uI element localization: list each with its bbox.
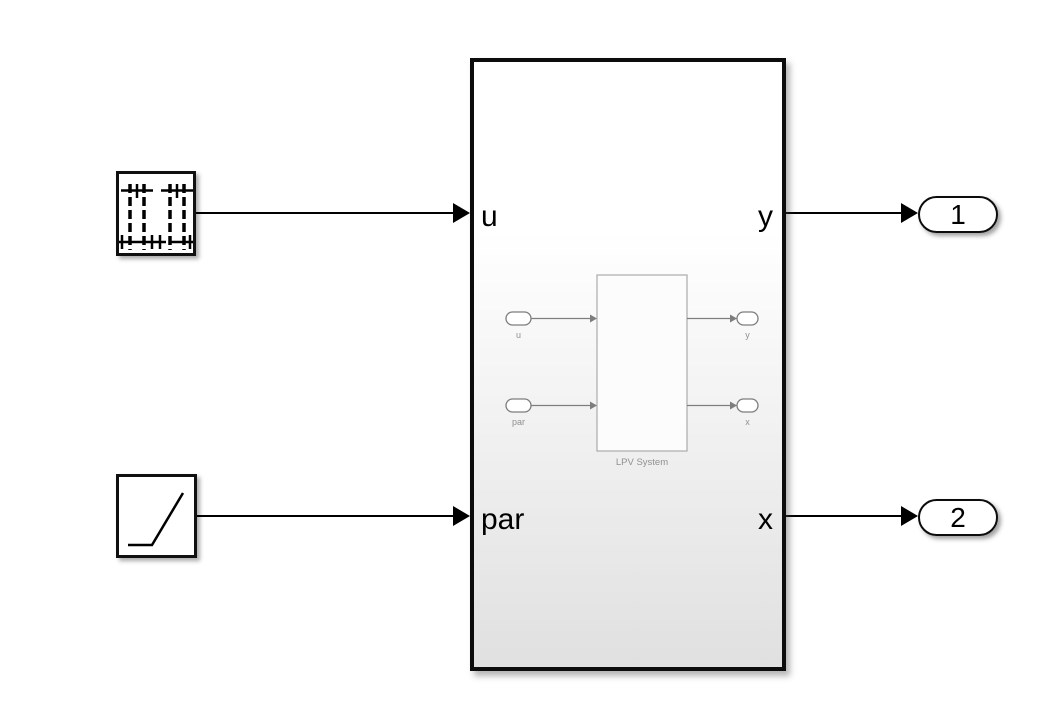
preview-lpv-system-block (597, 275, 687, 451)
subsystem-preview: u par y x LPV System (499, 269, 769, 474)
ramp-icon (119, 477, 194, 555)
subsystem-port-label-y: y (758, 202, 773, 232)
wire-y[interactable] (786, 212, 901, 214)
wire-u-arrowhead-icon (453, 203, 470, 223)
wire-u[interactable] (196, 212, 454, 214)
preview-arrowhead-icon (590, 315, 597, 323)
preview-label-u: u (516, 330, 521, 340)
outport-block-1[interactable]: 1 (918, 196, 998, 233)
wire-x[interactable] (786, 515, 901, 517)
preview-arrowhead-icon (730, 402, 737, 410)
wire-y-arrowhead-icon (901, 203, 918, 223)
outport-block-2[interactable]: 2 (918, 499, 998, 536)
preview-inport-par (506, 399, 531, 412)
stem-signal-icon (119, 174, 193, 253)
source-block-par[interactable] (116, 474, 197, 558)
source-block-u[interactable] (116, 171, 196, 256)
subsystem-port-label-u: u (481, 202, 498, 232)
preview-block-name: LPV System (616, 457, 668, 468)
preview-label-par: par (512, 417, 525, 427)
wire-par[interactable] (197, 515, 454, 517)
wire-x-arrowhead-icon (901, 506, 918, 526)
subsystem-port-label-x: x (758, 505, 773, 535)
preview-arrowhead-icon (590, 402, 597, 410)
preview-outport-x (737, 399, 758, 412)
outport-2-label: 2 (950, 502, 966, 534)
wire-par-arrowhead-icon (453, 506, 470, 526)
subsystem-port-label-par: par (481, 505, 524, 535)
subsystem-block[interactable]: u par y x u par y x LP (470, 58, 786, 671)
preview-arrowhead-icon (730, 315, 737, 323)
preview-inport-u (506, 312, 531, 325)
preview-label-x: x (745, 417, 750, 427)
preview-outport-y (737, 312, 758, 325)
diagram-canvas: u par y x u par y x LP (0, 0, 1042, 724)
outport-1-label: 1 (950, 199, 966, 231)
preview-label-y: y (745, 330, 750, 340)
